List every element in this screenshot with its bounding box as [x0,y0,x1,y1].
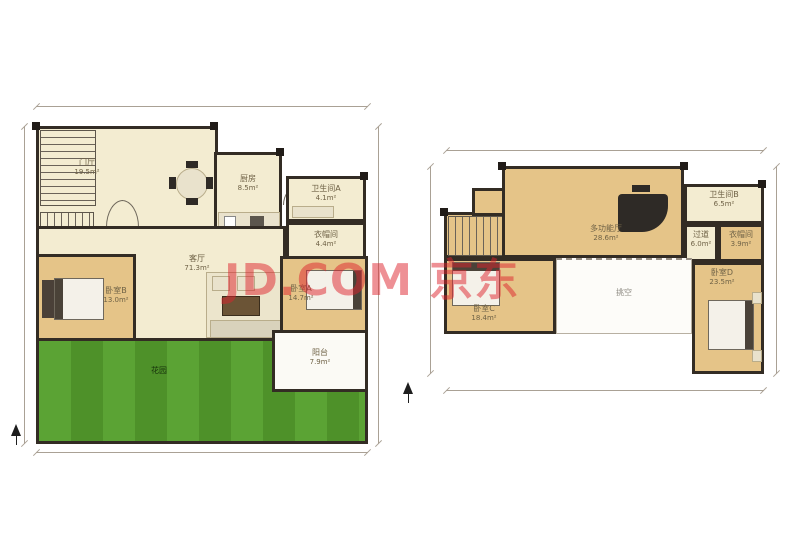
jd-watermark: JD.COM 京东 [224,244,574,302]
room-name: 卫生间B [698,190,750,200]
room-label: 客厅 71.3m² [172,254,222,272]
dining-chair [206,177,213,189]
wall-column [498,162,506,170]
room-area: 6.0m² [686,240,716,248]
wall-column [360,172,368,180]
room-name: 卧室B [98,286,134,296]
room-area: 4.1m² [296,194,356,202]
dining-chair [169,177,176,189]
dimension-line [446,150,764,151]
bathroom-fixtures [292,206,334,218]
room-label: 衣帽间 3.9m² [720,230,762,248]
room-stair-hall-upper [472,188,506,216]
room-name: 过道 [686,230,716,240]
dimension-line [36,452,368,453]
room-name: 阳台 [300,348,340,358]
room-area: 13.0m² [98,296,134,304]
dimension-line [36,106,368,107]
room-label: 过道 6.0m² [686,230,716,248]
dining-chair [186,161,198,168]
room-area: 7.9m² [300,358,340,366]
dimension-line [446,390,764,391]
room-label: 多功能厅 28.6m² [578,224,634,242]
room-label: 卫生间A 4.1m² [296,184,356,202]
wall-column [210,122,218,130]
wall-column [440,208,448,216]
room-area: 23.5m² [698,278,746,286]
room-area: 71.3m² [172,264,222,272]
north-arrow-icon [10,424,22,445]
room-area: 18.4m² [462,314,506,322]
bed [54,278,104,320]
wardrobe [42,280,54,318]
room-name: 卧室D [698,268,746,278]
room-area: 8.5m² [222,184,274,192]
floorplan-image: 门厅 19.5m² 厨房 8.5m² 卫生间A 4.1m² 衣帽间 4.4m² [0,0,800,550]
room-name: 多功能厅 [578,224,634,234]
north-arrow-icon [402,382,414,403]
room-area: 19.5m² [52,168,122,176]
nightstand [752,292,762,304]
room-label: 阳台 7.9m² [300,348,340,366]
room-area: 3.9m² [720,240,762,248]
room-label: 卧室C 18.4m² [462,304,506,322]
room-label: 卧室D 23.5m² [698,268,746,286]
room-label: 花园 [142,366,176,376]
room-name: 花园 [142,366,176,376]
bed [708,300,754,350]
dining-chair [186,198,198,205]
room-name: 卫生间A [296,184,356,194]
wall-column [758,180,766,188]
nightstand [752,350,762,362]
room-area: 6.5m² [698,200,750,208]
room-name: 厨房 [222,174,274,184]
wall-column [276,148,284,156]
room-name: 客厅 [172,254,222,264]
room-label: 厨房 8.5m² [222,174,274,192]
room-name: 挑空 [606,288,642,298]
dimension-line [24,126,25,444]
room-label: 门厅 19.5m² [52,158,122,176]
wall-column [32,122,40,130]
room-name: 门厅 [52,158,122,168]
room-label: 卫生间B 6.5m² [698,190,750,208]
wall-column [680,162,688,170]
dining-table [176,168,208,200]
room-name: 衣帽间 [296,230,356,240]
room-label: 挑空 [606,288,642,298]
piano-bench [632,185,650,192]
room-name: 衣帽间 [720,230,762,240]
room-label: 卧室B 13.0m² [98,286,134,304]
dimension-line [776,166,777,374]
room-area: 28.6m² [578,234,634,242]
